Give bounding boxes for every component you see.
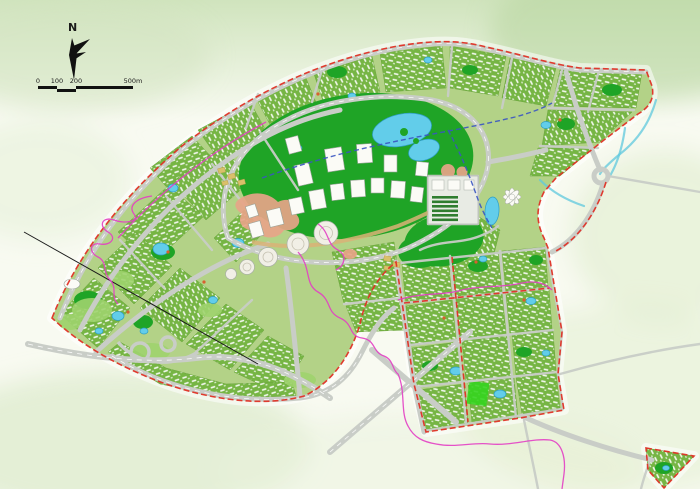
scale-tick-200: 200 bbox=[70, 77, 82, 85]
scale-segment-1 bbox=[38, 86, 57, 89]
scale-tick-0: 0 bbox=[36, 77, 40, 85]
north-label: N bbox=[68, 21, 77, 34]
scale-tick-100: 100 bbox=[51, 77, 63, 85]
master-plan-canvas: N 0 100 200 500m bbox=[0, 0, 700, 489]
scale-segment-2 bbox=[57, 89, 76, 92]
master-plan-map: N 0 100 200 500m bbox=[0, 0, 700, 489]
flower-building bbox=[503, 188, 521, 206]
scale-tick-500: 500m bbox=[124, 77, 143, 85]
government-complex bbox=[428, 176, 478, 224]
scale-segment-3 bbox=[76, 86, 133, 89]
